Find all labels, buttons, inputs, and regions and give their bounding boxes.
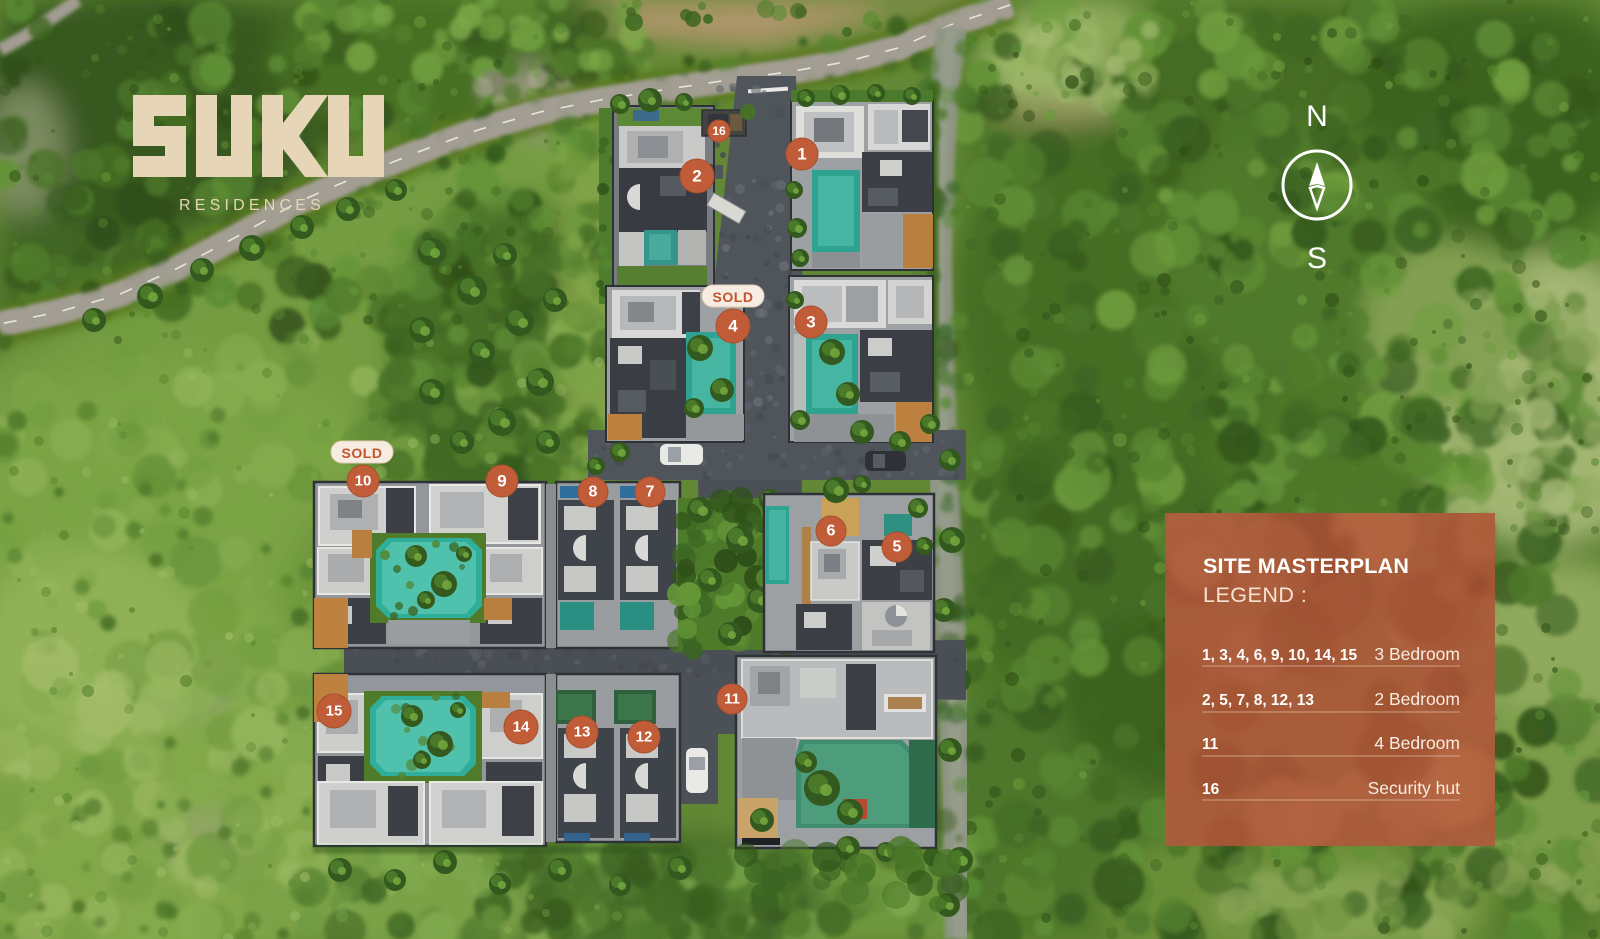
svg-text:SOLD: SOLD: [713, 289, 754, 305]
svg-text:10: 10: [355, 473, 372, 490]
svg-text:3 Bedroom: 3 Bedroom: [1374, 644, 1460, 664]
svg-text:5: 5: [893, 539, 902, 556]
svg-text:16: 16: [1202, 781, 1220, 798]
svg-text:2 Bedroom: 2 Bedroom: [1374, 689, 1460, 709]
svg-text:2: 2: [692, 167, 701, 186]
svg-text:LEGEND :: LEGEND :: [1203, 583, 1307, 607]
svg-text:9: 9: [497, 472, 506, 491]
svg-text:1: 1: [797, 145, 806, 164]
svg-text:16: 16: [712, 124, 726, 138]
svg-text:N: N: [1306, 100, 1328, 133]
svg-text:2, 5, 7, 8, 12, 13: 2, 5, 7, 8, 12, 13: [1202, 692, 1314, 709]
svg-text:11: 11: [1202, 736, 1219, 753]
svg-text:11: 11: [724, 691, 740, 708]
svg-text:12: 12: [636, 729, 653, 746]
svg-text:4 Bedroom: 4 Bedroom: [1374, 733, 1460, 753]
svg-text:14: 14: [513, 719, 530, 736]
svg-text:Security hut: Security hut: [1368, 778, 1461, 798]
svg-text:13: 13: [574, 724, 591, 741]
svg-text:8: 8: [589, 484, 598, 501]
svg-text:4: 4: [728, 317, 738, 336]
svg-text:6: 6: [827, 523, 836, 540]
svg-text:SITE MASTERPLAN: SITE MASTERPLAN: [1203, 554, 1409, 578]
svg-text:RESIDENCES: RESIDENCES: [179, 197, 325, 214]
svg-text:3: 3: [806, 313, 815, 332]
svg-text:SOLD: SOLD: [342, 445, 383, 461]
svg-text:15: 15: [326, 703, 343, 720]
svg-text:S: S: [1307, 242, 1327, 275]
svg-text:7: 7: [646, 484, 655, 501]
svg-text:1, 3, 4, 6, 9, 10, 14, 15: 1, 3, 4, 6, 9, 10, 14, 15: [1202, 647, 1357, 664]
